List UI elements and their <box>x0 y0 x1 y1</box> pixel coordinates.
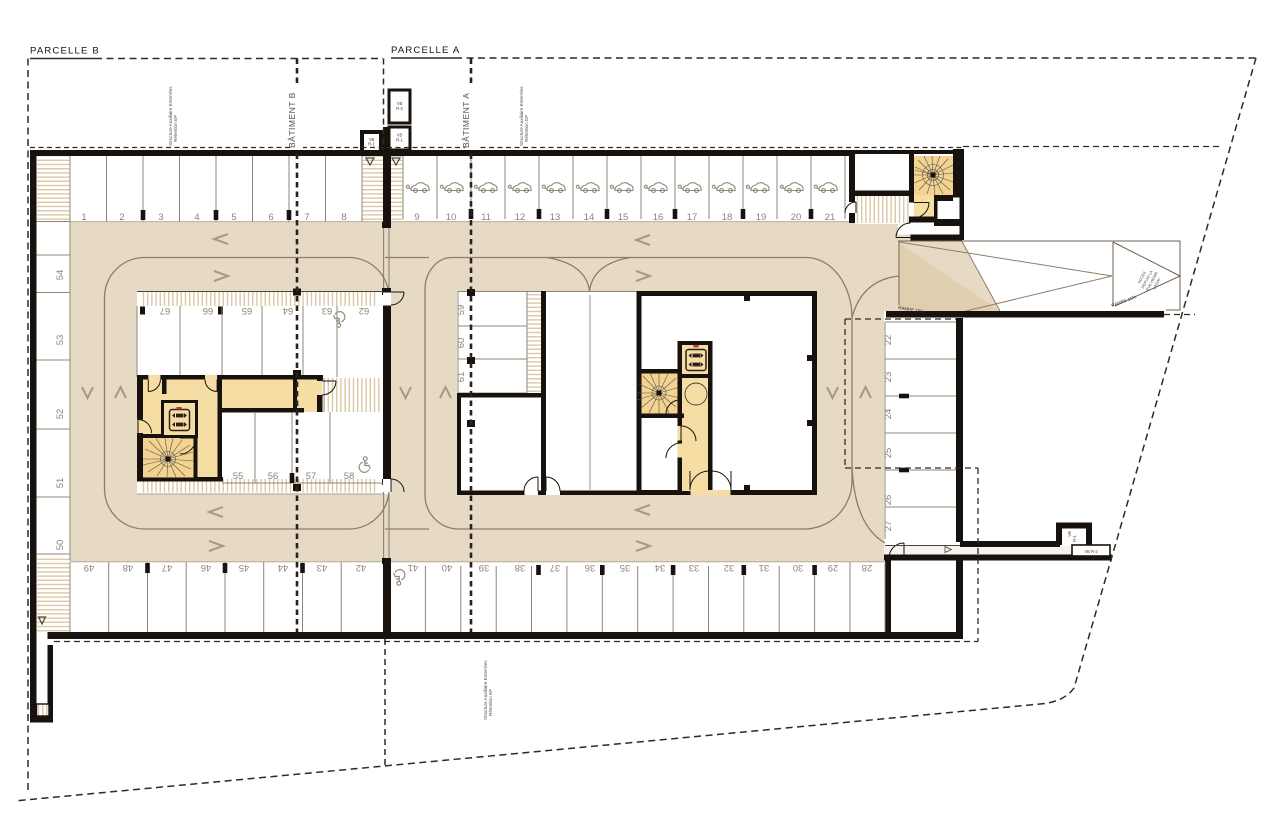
svg-text:15: 15 <box>618 212 629 223</box>
svg-text:50: 50 <box>55 540 66 551</box>
svg-text:64: 64 <box>283 305 294 316</box>
svg-text:Rétention EP: Rétention EP <box>488 689 493 716</box>
svg-text:58: 58 <box>344 471 355 482</box>
svg-text:7: 7 <box>304 212 309 223</box>
svg-text:8: 8 <box>341 212 346 223</box>
svg-text:52: 52 <box>55 409 66 420</box>
svg-text:37: 37 <box>550 562 561 573</box>
svg-text:30: 30 <box>793 562 804 573</box>
svg-text:18: 18 <box>722 212 733 223</box>
svg-text:45: 45 <box>239 562 250 573</box>
svg-text:53: 53 <box>55 335 66 346</box>
svg-text:14: 14 <box>584 212 595 223</box>
svg-text:25: 25 <box>883 448 894 459</box>
svg-text:R-2: R-2 <box>396 106 403 111</box>
svg-text:65: 65 <box>242 305 253 316</box>
svg-text:VB R-2: VB R-2 <box>1084 549 1098 554</box>
svg-text:10: 10 <box>446 212 457 223</box>
svg-text:47: 47 <box>162 562 173 573</box>
svg-text:62: 62 <box>359 305 370 316</box>
svg-text:13: 13 <box>550 212 561 223</box>
svg-text:1: 1 <box>81 212 86 223</box>
svg-text:40: 40 <box>442 562 453 573</box>
svg-text:27: 27 <box>883 521 894 532</box>
svg-text:17: 17 <box>687 212 698 223</box>
svg-text:34: 34 <box>655 562 666 573</box>
svg-text:39: 39 <box>479 562 490 573</box>
svg-text:R-1: R-1 <box>396 138 403 143</box>
svg-text:4: 4 <box>194 212 199 223</box>
svg-text:R-1: R-1 <box>368 142 375 147</box>
svg-text:36: 36 <box>585 562 596 573</box>
svg-text:BÂTIMENT B: BÂTIMENT B <box>287 92 297 148</box>
svg-text:23: 23 <box>883 372 894 383</box>
svg-text:3: 3 <box>158 212 163 223</box>
svg-text:48: 48 <box>123 562 134 573</box>
svg-text:29: 29 <box>828 562 839 573</box>
svg-text:BÂTIMENT A: BÂTIMENT A <box>461 93 471 148</box>
svg-text:44: 44 <box>278 562 289 573</box>
svg-text:33: 33 <box>689 562 700 573</box>
svg-text:32: 32 <box>724 562 735 573</box>
svg-text:12: 12 <box>515 212 526 223</box>
svg-text:PARCELLE B: PARCELLE B <box>30 46 100 57</box>
svg-text:42: 42 <box>356 562 367 573</box>
svg-text:56: 56 <box>268 471 279 482</box>
svg-text:54: 54 <box>55 270 66 281</box>
svg-text:16: 16 <box>653 212 664 223</box>
svg-text:28: 28 <box>862 562 873 573</box>
svg-text:38: 38 <box>515 562 526 573</box>
svg-text:Rétention EP: Rétention EP <box>173 115 178 142</box>
svg-text:20: 20 <box>791 212 802 223</box>
svg-text:22: 22 <box>883 335 894 346</box>
svg-text:2: 2 <box>119 212 124 223</box>
svg-text:66: 66 <box>203 305 214 316</box>
svg-text:PARCELLE A: PARCELLE A <box>391 45 460 56</box>
svg-text:61: 61 <box>456 372 467 383</box>
svg-text:6: 6 <box>268 212 273 223</box>
svg-text:60: 60 <box>456 338 467 349</box>
svg-text:19: 19 <box>756 212 767 223</box>
svg-text:5: 5 <box>231 212 236 223</box>
svg-text:57: 57 <box>306 471 317 482</box>
svg-text:43: 43 <box>317 562 328 573</box>
svg-text:49: 49 <box>84 562 95 573</box>
svg-text:63: 63 <box>322 305 333 316</box>
svg-text:55: 55 <box>233 471 244 482</box>
svg-text:11: 11 <box>481 212 491 223</box>
svg-text:24: 24 <box>883 409 894 420</box>
svg-text:41: 41 <box>408 562 419 573</box>
svg-text:Rétention EP: Rétention EP <box>524 115 529 142</box>
svg-text:26: 26 <box>883 495 894 506</box>
svg-text:67: 67 <box>160 305 171 316</box>
svg-text:9: 9 <box>414 212 419 223</box>
svg-text:51: 51 <box>55 478 66 489</box>
svg-text:59: 59 <box>456 305 467 316</box>
svg-text:31: 31 <box>759 562 770 573</box>
svg-text:21: 21 <box>825 212 836 223</box>
svg-text:35: 35 <box>620 562 631 573</box>
svg-text:R-1: R-1 <box>1072 534 1077 541</box>
svg-text:46: 46 <box>201 562 212 573</box>
